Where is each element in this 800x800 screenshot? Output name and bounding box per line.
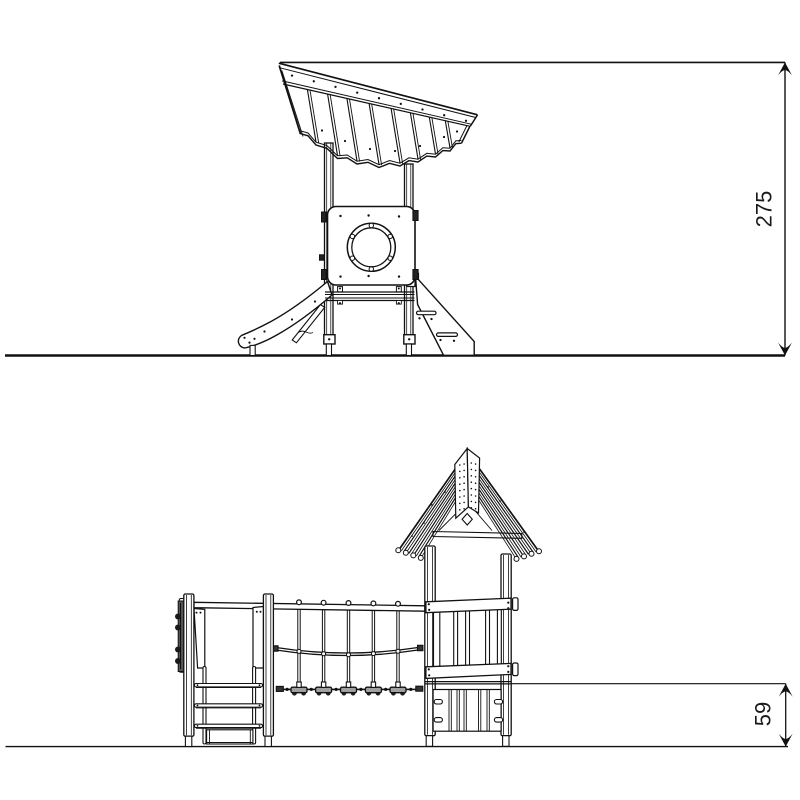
- svg-text:275: 275: [752, 191, 777, 228]
- svg-text:59: 59: [751, 702, 776, 726]
